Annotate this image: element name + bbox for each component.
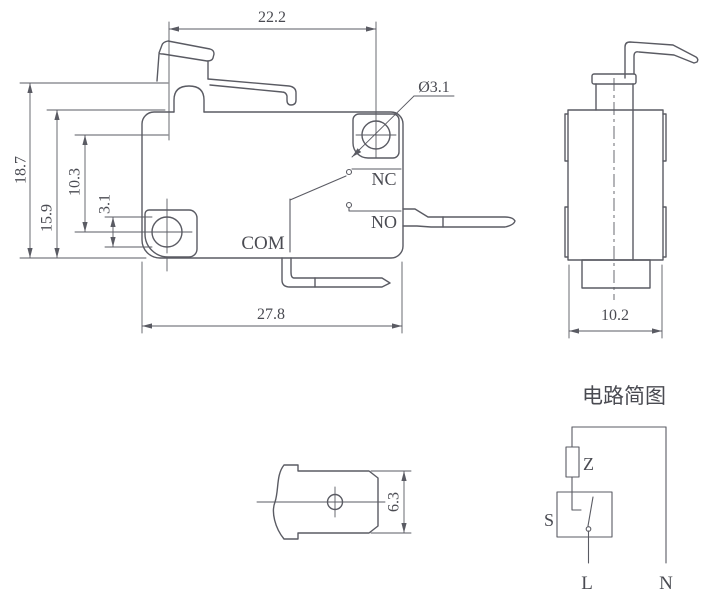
- dim-27-8-label: 27.8: [257, 306, 285, 323]
- dim-10-3-label: 10.3: [67, 168, 84, 196]
- side-plunger: [596, 84, 633, 110]
- arrowhead: [82, 135, 87, 145]
- dim-22-2-label: 22.2: [258, 9, 286, 26]
- arrowhead: [110, 237, 115, 247]
- side-terminal-block: [582, 260, 650, 288]
- arrowhead: [110, 217, 115, 227]
- circuit-title: 电路简图: [582, 384, 666, 408]
- arrowhead: [401, 523, 406, 533]
- impedance-label: Z: [583, 454, 594, 474]
- no-terminal: [403, 209, 515, 227]
- no-contact-point: [347, 203, 352, 208]
- side-lever: [625, 42, 698, 78]
- switch-pole: [572, 492, 581, 510]
- side-body: [568, 110, 663, 260]
- dim-dia-3-1-label: Ø3.1: [418, 79, 450, 96]
- technical-drawing: NC NO COM 22.2 18.7 15.9 1: [0, 0, 720, 597]
- terminal-detail-view: 6.3: [257, 465, 411, 539]
- dim-10-2-label: 10.2: [601, 307, 629, 324]
- front-view: NC NO COM 22.2 18.7 15.9 1: [13, 9, 515, 333]
- arrowhead: [169, 26, 179, 31]
- dim-6-3-label: 6.3: [386, 492, 403, 512]
- switch-blade: [588, 497, 593, 526]
- arrowhead: [54, 248, 59, 258]
- nc-label: NC: [371, 169, 396, 189]
- dim-15-9-label: 15.9: [39, 204, 56, 232]
- arrowhead: [27, 248, 32, 258]
- actuator-cap-face: [157, 54, 159, 81]
- dim-3-1-label: 3.1: [97, 194, 114, 214]
- no-label: NO: [371, 212, 397, 232]
- arrowhead: [27, 83, 32, 93]
- arrowhead: [569, 328, 579, 333]
- microswitch-drawing: NC NO COM 22.2 18.7 15.9 1: [0, 0, 720, 597]
- neutral-label: N: [659, 573, 673, 594]
- circuit-diagram: 电路简图 Z S L N: [544, 384, 673, 594]
- moving-blade: [290, 176, 346, 200]
- com-label: COM: [241, 233, 284, 254]
- switch-box: [557, 492, 612, 537]
- live-label: L: [581, 573, 593, 594]
- arrowhead: [401, 471, 406, 481]
- arrowhead: [366, 26, 376, 31]
- impedance-symbol: [566, 447, 579, 477]
- arrowhead: [392, 323, 402, 328]
- switch-label: S: [544, 510, 554, 530]
- plunger-dome: [174, 86, 204, 112]
- lever-arm: [208, 79, 296, 105]
- actuator-cap: [159, 41, 214, 61]
- side-view: 10.2: [565, 42, 698, 338]
- nc-contact-point: [347, 170, 352, 175]
- arrowhead: [54, 110, 59, 120]
- dim-18-7-label: 18.7: [13, 156, 30, 184]
- arrowhead: [142, 323, 152, 328]
- com-terminal: [282, 258, 390, 287]
- arrowhead: [652, 328, 662, 333]
- no-conductor: [349, 208, 401, 211]
- arrowhead: [82, 222, 87, 232]
